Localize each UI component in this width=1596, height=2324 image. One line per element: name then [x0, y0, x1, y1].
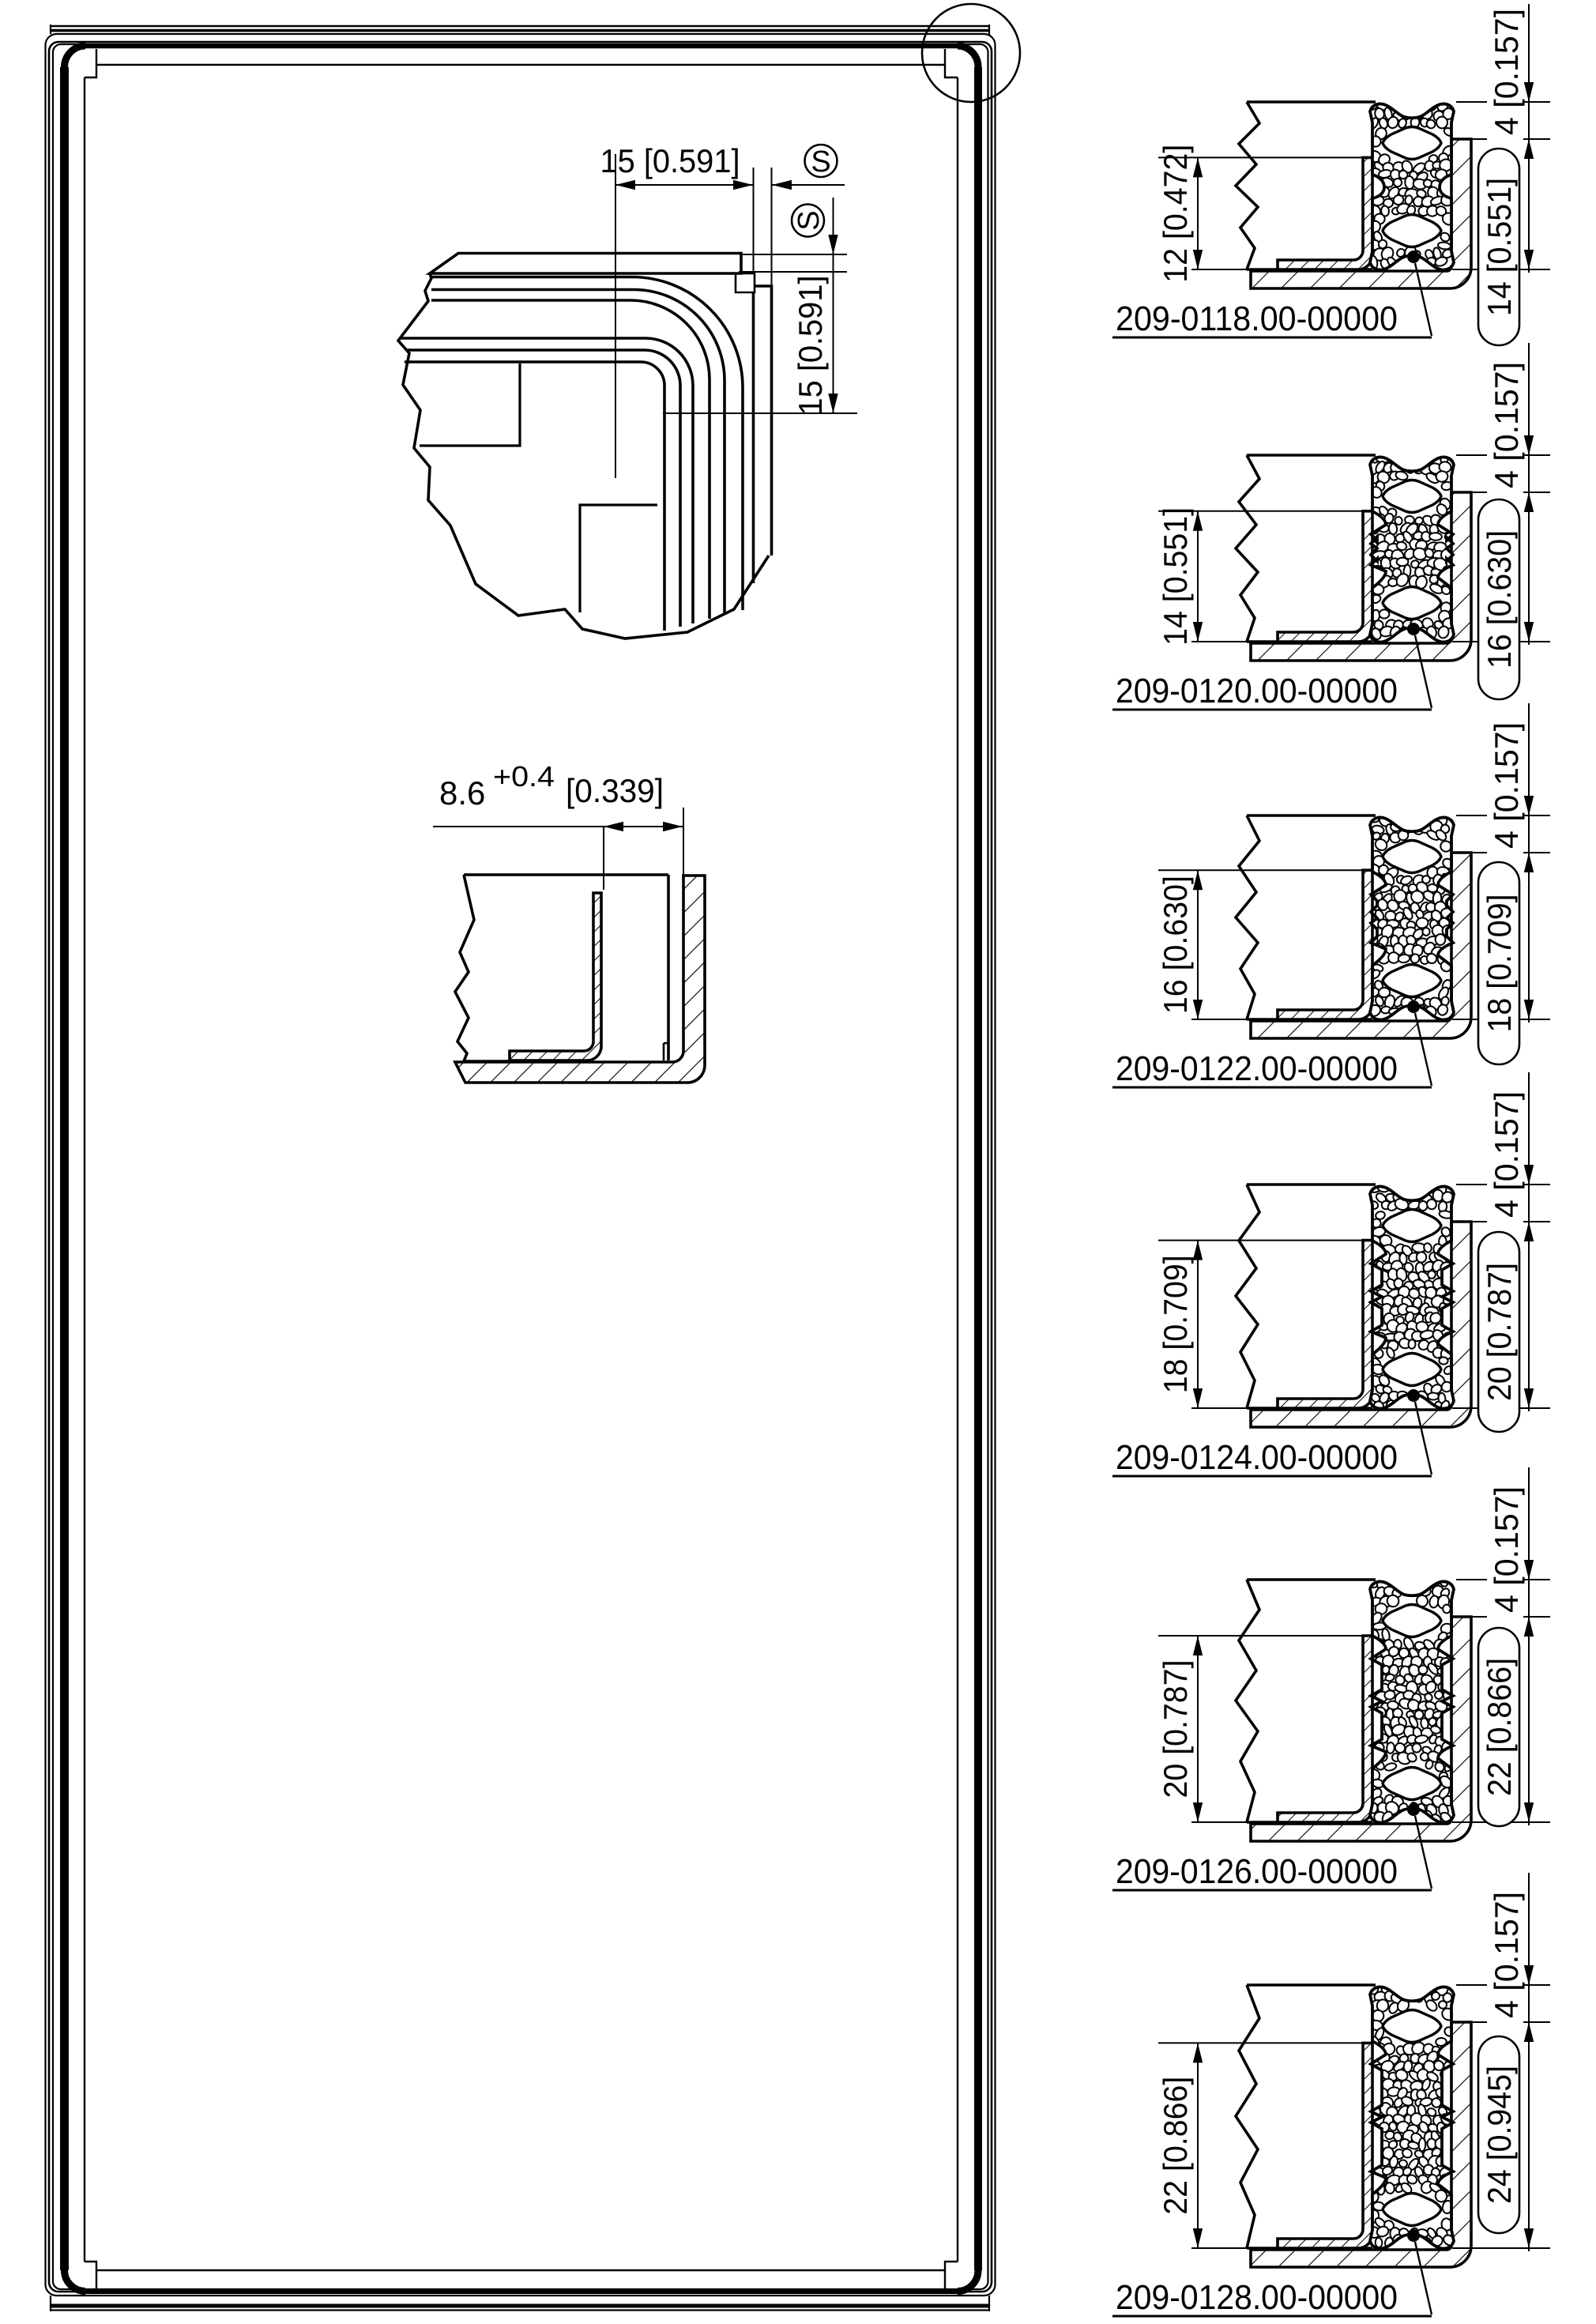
svg-text:14 [0.551]: 14 [0.551] [1481, 178, 1518, 316]
svg-text:4 [0.157]: 4 [0.157] [1488, 362, 1525, 488]
svg-text:+0.4: +0.4 [493, 760, 555, 793]
svg-text:209-0124.00-00000: 209-0124.00-00000 [1116, 1438, 1398, 1477]
svg-text:15 [0.591]: 15 [0.591] [792, 276, 829, 416]
svg-text:16 [0.630]: 16 [0.630] [1481, 530, 1518, 669]
svg-text:12 [0.472]: 12 [0.472] [1157, 145, 1194, 283]
svg-text:209-0120.00-00000: 209-0120.00-00000 [1116, 672, 1398, 710]
svg-text:8.6: 8.6 [439, 774, 485, 812]
svg-text:[0.339]: [0.339] [566, 772, 664, 809]
svg-text:24 [0.945]: 24 [0.945] [1481, 2066, 1518, 2204]
svg-text:16 [0.630]: 16 [0.630] [1157, 876, 1194, 1014]
svg-text:4 [0.157]: 4 [0.157] [1488, 9, 1525, 135]
svg-text:4 [0.157]: 4 [0.157] [1488, 1892, 1525, 2018]
svg-text:4 [0.157]: 4 [0.157] [1488, 1486, 1525, 1613]
svg-text:S: S [792, 210, 826, 230]
svg-text:15 [0.591]: 15 [0.591] [600, 142, 740, 179]
svg-text:4 [0.157]: 4 [0.157] [1488, 722, 1525, 849]
svg-text:S: S [811, 145, 830, 179]
svg-text:18 [0.709]: 18 [0.709] [1157, 1255, 1194, 1393]
svg-text:4 [0.157]: 4 [0.157] [1488, 1091, 1525, 1218]
svg-text:20 [0.787]: 20 [0.787] [1481, 1263, 1518, 1401]
svg-text:209-0128.00-00000: 209-0128.00-00000 [1116, 2278, 1398, 2317]
svg-text:22 [0.866]: 22 [0.866] [1157, 2077, 1194, 2215]
svg-text:22 [0.866]: 22 [0.866] [1481, 1658, 1518, 1796]
svg-text:20 [0.787]: 20 [0.787] [1157, 1660, 1194, 1799]
svg-text:209-0126.00-00000: 209-0126.00-00000 [1116, 1852, 1398, 1891]
svg-text:14 [0.551]: 14 [0.551] [1157, 507, 1194, 646]
svg-text:209-0118.00-00000: 209-0118.00-00000 [1116, 299, 1398, 338]
svg-text:209-0122.00-00000: 209-0122.00-00000 [1116, 1049, 1398, 1088]
svg-text:18 [0.709]: 18 [0.709] [1481, 895, 1518, 1033]
